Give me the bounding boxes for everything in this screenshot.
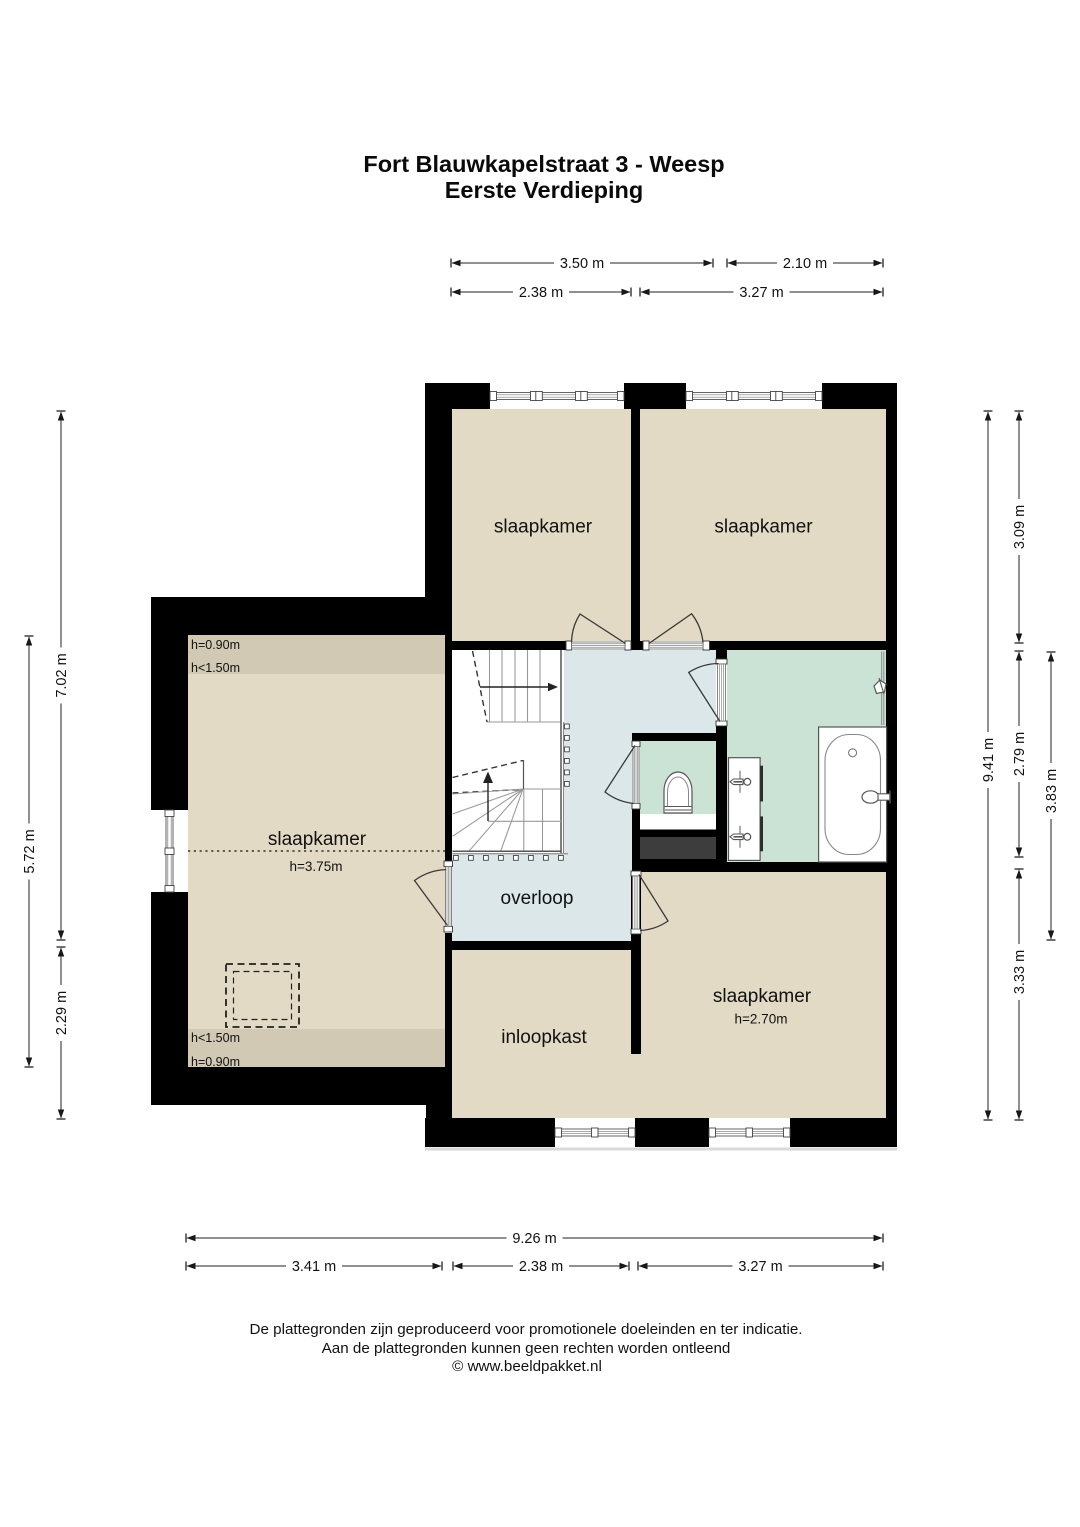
svg-text:h=2.70m: h=2.70m bbox=[735, 1012, 788, 1027]
svg-text:h=0.90m: h=0.90m bbox=[191, 1055, 240, 1069]
svg-text:3.27 m: 3.27 m bbox=[738, 1259, 782, 1275]
svg-text:3.27 m: 3.27 m bbox=[739, 285, 783, 301]
svg-text:h=0.90m: h=0.90m bbox=[191, 638, 240, 652]
svg-text:© www.beeldpakket.nl: © www.beeldpakket.nl bbox=[452, 1358, 602, 1375]
svg-text:slaapkamer: slaapkamer bbox=[714, 517, 813, 538]
svg-text:inloopkast: inloopkast bbox=[501, 1027, 587, 1048]
svg-text:Fort Blauwkapelstraat 3 - Wees: Fort Blauwkapelstraat 3 - Weesp bbox=[363, 151, 724, 177]
svg-text:2.29 m: 2.29 m bbox=[54, 991, 70, 1035]
svg-text:9.41 m: 9.41 m bbox=[981, 738, 997, 782]
svg-text:h=3.75m: h=3.75m bbox=[290, 859, 343, 874]
svg-text:slaapkamer: slaapkamer bbox=[268, 829, 367, 850]
svg-text:overloop: overloop bbox=[501, 888, 574, 909]
svg-text:2.38 m: 2.38 m bbox=[519, 1259, 563, 1275]
svg-text:slaapkamer: slaapkamer bbox=[494, 517, 593, 538]
svg-text:9.26 m: 9.26 m bbox=[512, 1231, 556, 1247]
svg-text:2.79 m: 2.79 m bbox=[1012, 732, 1028, 776]
svg-text:h<1.50m: h<1.50m bbox=[191, 661, 240, 675]
svg-text:Eerste Verdieping: Eerste Verdieping bbox=[445, 177, 644, 203]
svg-text:Aan de plattegronden kunnen ge: Aan de plattegronden kunnen geen rechten… bbox=[322, 1340, 731, 1357]
svg-text:h<1.50m: h<1.50m bbox=[191, 1031, 240, 1045]
svg-text:3.83 m: 3.83 m bbox=[1044, 769, 1060, 813]
svg-text:3.41 m: 3.41 m bbox=[292, 1259, 336, 1275]
svg-text:2.10 m: 2.10 m bbox=[783, 256, 827, 272]
svg-text:2.38 m: 2.38 m bbox=[519, 285, 563, 301]
svg-text:slaapkamer: slaapkamer bbox=[713, 986, 812, 1007]
svg-text:7.02 m: 7.02 m bbox=[54, 653, 70, 697]
svg-text:5.72 m: 5.72 m bbox=[22, 829, 38, 873]
svg-text:3.09 m: 3.09 m bbox=[1012, 505, 1028, 549]
svg-text:De plattegronden zijn geproduc: De plattegronden zijn geproduceerd voor … bbox=[249, 1321, 802, 1338]
svg-text:3.50 m: 3.50 m bbox=[560, 256, 604, 272]
svg-text:3.33 m: 3.33 m bbox=[1012, 950, 1028, 994]
